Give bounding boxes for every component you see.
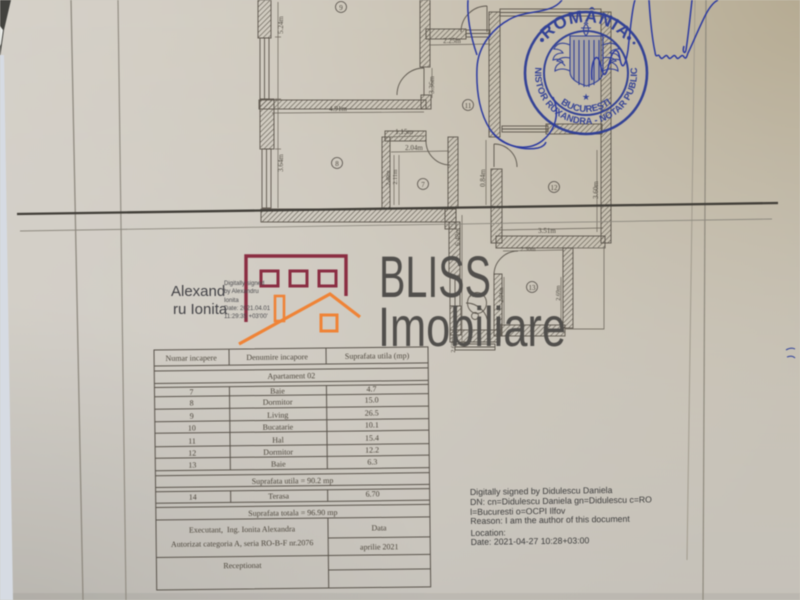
svg-text:by Alexandru: by Alexandru [224, 289, 259, 295]
svg-text:Date: 2021-04-27 10:28+03:00: Date: 2021-04-27 10:28+03:00 [471, 535, 590, 547]
svg-text:Numar incapere: Numar incapere [165, 353, 217, 363]
svg-text:6.70: 6.70 [366, 489, 380, 498]
svg-text:1.15m: 1.15m [395, 128, 413, 136]
svg-text:11: 11 [188, 437, 196, 446]
svg-text:Autorizat categoria A, seria R: Autorizat categoria A, seria RO-B-F nr.2… [171, 538, 314, 549]
svg-text:2.25m: 2.25m [443, 37, 461, 45]
svg-text:10.1: 10.1 [365, 420, 379, 429]
svg-text:2.04m: 2.04m [405, 144, 423, 152]
svg-text:11:29:35 +03'00': 11:29:35 +03'00' [224, 314, 268, 320]
svg-text:5.24m: 5.24m [277, 16, 285, 34]
svg-text:Imobiliare: Imobiliare [378, 295, 566, 358]
svg-text:Apartament 02: Apartament 02 [267, 371, 315, 381]
svg-text:Ionita: Ionita [224, 298, 239, 304]
svg-text:10: 10 [188, 424, 196, 433]
svg-text:9: 9 [339, 4, 343, 12]
svg-text:3.64m: 3.64m [277, 154, 285, 172]
svg-text:15.4: 15.4 [365, 433, 379, 442]
svg-text:Digitally signed: Digitally signed [224, 281, 264, 287]
svg-text:9: 9 [190, 412, 194, 421]
svg-text:13: 13 [188, 461, 196, 470]
svg-text:2.30m: 2.30m [520, 247, 536, 253]
svg-text:Living: Living [267, 410, 288, 419]
svg-text:Baie: Baie [271, 460, 286, 469]
svg-text:3.51m: 3.51m [538, 227, 556, 235]
svg-text:8: 8 [335, 160, 339, 168]
svg-text:Terasa: Terasa [268, 491, 289, 500]
svg-text:Data: Data [371, 523, 387, 532]
svg-text:Baie: Baie [270, 387, 285, 396]
svg-text:3.60m: 3.60m [592, 181, 600, 199]
svg-text:13: 13 [529, 284, 537, 292]
svg-text:Executant, Ing. Ionita Alexan: Executant, Ing. Ionita Alexandra [189, 524, 296, 534]
svg-text:11: 11 [465, 102, 472, 110]
svg-text:Dormitor: Dormitor [263, 397, 293, 406]
svg-text:Hal: Hal [272, 436, 284, 445]
svg-text:★: ★ [582, 92, 590, 102]
svg-text:2.11m: 2.11m [393, 169, 399, 184]
svg-text:Suprafata utila (mp): Suprafata utila (mp) [345, 351, 410, 361]
svg-text:Suprafata totala = 96.90 mp: Suprafata totala = 96.90 mp [248, 508, 337, 518]
svg-text:Dormitor: Dormitor [263, 447, 293, 456]
svg-text:ru Ionita: ru Ionita [173, 301, 228, 318]
svg-text:3.36m: 3.36m [428, 76, 436, 94]
svg-text:Suprafata utila = 90.2 mp: Suprafata utila = 90.2 mp [252, 476, 334, 486]
svg-text:aprilie 2021: aprilie 2021 [360, 542, 399, 551]
svg-text:8: 8 [190, 399, 194, 408]
svg-text:12: 12 [188, 449, 196, 458]
svg-text:7: 7 [421, 181, 425, 189]
svg-text:4.91m: 4.91m [329, 105, 347, 113]
svg-text:14: 14 [189, 493, 197, 502]
svg-text:2.40m: 2.40m [386, 170, 392, 186]
svg-text:Date: 2021.04.01: Date: 2021.04.01 [224, 306, 271, 312]
svg-text:Alexand: Alexand [171, 283, 225, 300]
svg-text:Receptionat: Receptionat [223, 561, 262, 570]
svg-text:6.48m: 6.48m [454, 228, 462, 246]
svg-text:4.7: 4.7 [366, 384, 376, 393]
svg-text:6.3: 6.3 [367, 457, 377, 466]
svg-text:Denumire incapore: Denumire incapore [246, 352, 308, 362]
svg-text:12: 12 [551, 184, 559, 192]
svg-text:Bucatarie: Bucatarie [263, 422, 294, 431]
svg-text:26.5: 26.5 [365, 408, 379, 417]
svg-text:0.84m: 0.84m [479, 169, 487, 187]
svg-text:7: 7 [189, 388, 193, 397]
svg-text:12.2: 12.2 [365, 445, 379, 454]
svg-text:15.0: 15.0 [365, 395, 379, 404]
